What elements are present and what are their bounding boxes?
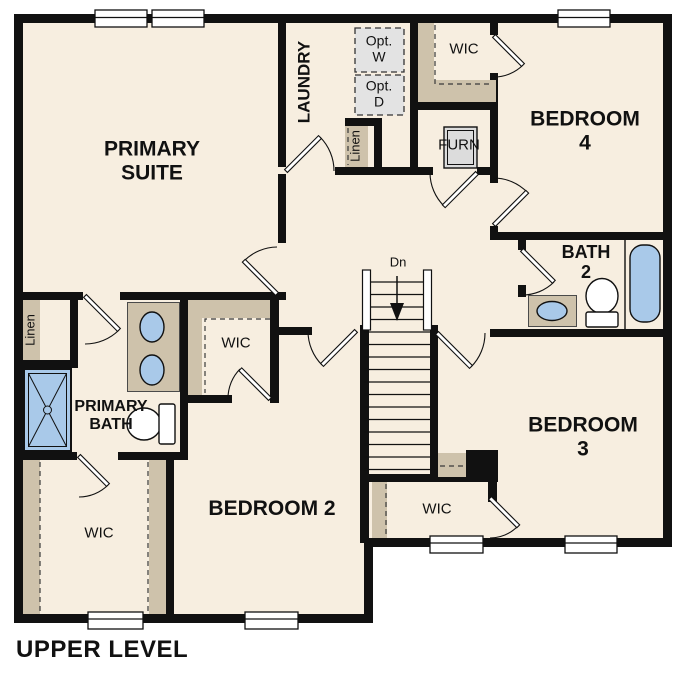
window — [558, 10, 610, 27]
room-label-primary-suite: PRIMARY SUITE — [104, 137, 200, 184]
closet-label-wic-primary: WIC — [221, 336, 250, 353]
door-leaf[interactable] — [78, 455, 110, 487]
sink — [537, 302, 567, 321]
door-leaf[interactable] — [493, 35, 525, 67]
door-leaf[interactable] — [493, 190, 529, 226]
stairs-label-dn: Dn — [390, 256, 407, 271]
stair-rail — [424, 270, 432, 330]
closet-label-linen-bath: Linen — [24, 314, 39, 346]
closet-label-wic-bedroom3: WIC — [422, 502, 451, 519]
window — [430, 536, 483, 553]
door-leaf[interactable] — [521, 249, 556, 284]
utility-label-furn: FURN — [438, 138, 480, 155]
utility-label-opt-w: Opt. W — [366, 33, 392, 64]
stair-rail — [363, 270, 371, 330]
closet-label-wic-upper: WIC — [449, 42, 478, 59]
windows — [88, 10, 617, 629]
shower — [24, 369, 71, 451]
stairs — [363, 270, 432, 470]
door-leaf[interactable] — [321, 330, 358, 367]
bathtub — [625, 240, 660, 329]
room-label-bedroom-4: BEDROOM 4 — [530, 107, 640, 154]
sink — [140, 312, 164, 342]
closet-label-wic-lower: WIC — [84, 526, 113, 543]
closet-label-linen-hall: Linen — [349, 130, 364, 162]
window — [565, 536, 617, 553]
room-label-bedroom-3: BEDROOM 3 — [528, 413, 638, 460]
window — [88, 612, 143, 629]
door-leaf[interactable] — [239, 368, 272, 401]
plan-symbols — [0, 0, 687, 687]
room-label-bath-2: BATH 2 — [562, 242, 611, 282]
door-leaf[interactable] — [285, 136, 322, 173]
door-leaf[interactable] — [242, 259, 278, 295]
door-leaf[interactable] — [436, 332, 473, 369]
sink — [140, 355, 164, 385]
door-leaf[interactable] — [442, 172, 478, 208]
door-leaf[interactable] — [84, 295, 121, 332]
doors — [78, 35, 556, 538]
utility-label-opt-d: Opt. D — [366, 78, 392, 109]
room-label-primary-bath: PRIMARY BATH — [74, 398, 147, 434]
toilet — [586, 279, 618, 328]
door-leaf[interactable] — [489, 497, 520, 528]
page-title: UPPER LEVEL — [16, 636, 188, 664]
window — [245, 612, 298, 629]
room-label-laundry: LAUNDRY — [294, 41, 313, 123]
floor-plan: PRIMARY SUITE LAUNDRY BEDROOM 4 BATH 2 B… — [0, 0, 687, 687]
down-arrow-head — [390, 303, 404, 321]
room-label-bedroom-2: BEDROOM 2 — [208, 497, 335, 521]
window — [95, 10, 147, 27]
window — [152, 10, 204, 27]
